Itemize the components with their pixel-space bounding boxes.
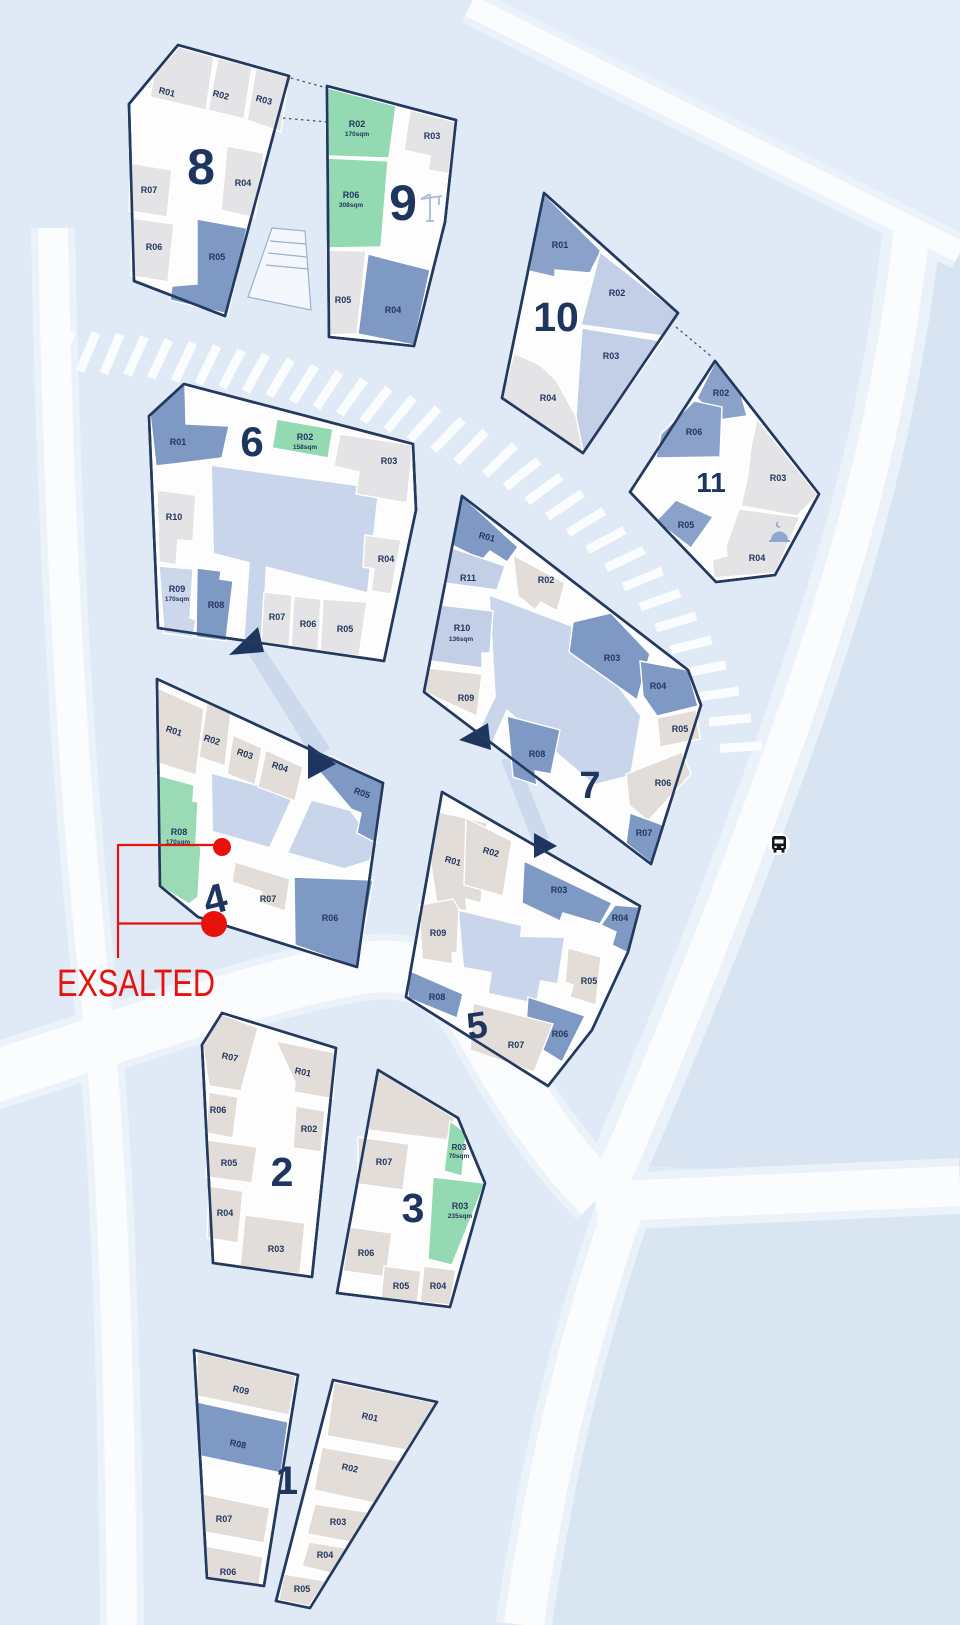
svg-text:R11: R11 (460, 573, 476, 583)
svg-text:R07: R07 (269, 612, 286, 622)
svg-text:R03: R03 (604, 653, 621, 663)
svg-text:R05: R05 (672, 724, 689, 734)
svg-text:R06: R06 (300, 619, 317, 629)
svg-text:R05: R05 (221, 1158, 238, 1168)
svg-text:R02: R02 (349, 119, 366, 129)
svg-text:11: 11 (696, 467, 726, 498)
svg-text:R04: R04 (217, 1208, 234, 1218)
svg-text:R03: R03 (452, 1201, 469, 1211)
svg-text:R07: R07 (376, 1157, 393, 1167)
svg-text:R04: R04 (612, 913, 629, 923)
svg-text:7: 7 (579, 765, 600, 807)
svg-text:R06: R06 (655, 778, 672, 788)
svg-text:R10: R10 (454, 623, 471, 633)
svg-text:136sqm: 136sqm (449, 636, 473, 643)
svg-text:R05: R05 (678, 520, 695, 530)
svg-text:R09: R09 (458, 693, 475, 703)
svg-text:235sqm: 235sqm (448, 1213, 472, 1220)
svg-text:R04: R04 (385, 305, 402, 315)
svg-text:R07: R07 (636, 828, 653, 838)
svg-text:R08: R08 (208, 600, 225, 610)
svg-text:R04: R04 (378, 554, 395, 564)
svg-text:EXSALTED: EXSALTED (57, 963, 215, 1005)
svg-text:R03: R03 (268, 1244, 285, 1254)
svg-text:2: 2 (271, 1149, 294, 1195)
svg-text:R07: R07 (508, 1040, 525, 1050)
svg-text:R09: R09 (169, 584, 186, 594)
svg-text:R05: R05 (335, 295, 352, 305)
svg-text:R06: R06 (343, 190, 360, 200)
svg-text:R02: R02 (609, 288, 626, 298)
svg-text:R01: R01 (170, 437, 187, 447)
svg-text:R02: R02 (713, 388, 730, 398)
svg-text:R01: R01 (552, 240, 569, 250)
svg-text:R05: R05 (294, 1584, 311, 1594)
svg-text:R06: R06 (322, 913, 339, 923)
svg-text:R06: R06 (358, 1248, 375, 1258)
svg-text:R05: R05 (581, 976, 598, 986)
svg-text:R03: R03 (424, 131, 441, 141)
svg-text:R04: R04 (540, 393, 557, 403)
svg-text:R04: R04 (650, 681, 667, 691)
svg-text:R08: R08 (429, 992, 446, 1002)
svg-text:R02: R02 (538, 575, 555, 585)
svg-text:8: 8 (187, 139, 215, 195)
svg-text:R03: R03 (452, 1143, 467, 1152)
svg-text:R06: R06 (552, 1029, 569, 1039)
svg-text:R09: R09 (430, 928, 447, 938)
svg-text:R03: R03 (603, 351, 620, 361)
svg-text:R05: R05 (337, 624, 354, 634)
svg-text:R03: R03 (330, 1517, 347, 1527)
svg-text:R04: R04 (430, 1281, 447, 1291)
svg-text:9: 9 (389, 175, 417, 231)
svg-text:R05: R05 (209, 252, 226, 262)
svg-text:R07: R07 (141, 185, 158, 195)
svg-text:6: 6 (240, 418, 263, 465)
svg-text:R06: R06 (146, 242, 163, 252)
svg-text:R02: R02 (297, 432, 314, 442)
svg-text:170sqm: 170sqm (345, 131, 369, 138)
svg-text:R06: R06 (686, 427, 703, 437)
svg-text:70sqm: 70sqm (449, 1153, 470, 1160)
svg-text:R06: R06 (210, 1105, 227, 1115)
svg-text:158sqm: 158sqm (293, 444, 317, 451)
svg-text:10: 10 (533, 294, 579, 340)
svg-text:R04: R04 (749, 553, 766, 563)
svg-text:R10: R10 (166, 512, 183, 522)
svg-text:R04: R04 (317, 1550, 334, 1560)
svg-text:R03: R03 (770, 473, 787, 483)
svg-text:R04: R04 (235, 178, 252, 188)
svg-text:R08: R08 (529, 749, 546, 759)
svg-text:170sqm: 170sqm (165, 596, 189, 603)
svg-text:R07: R07 (260, 894, 277, 904)
svg-text:R07: R07 (216, 1514, 233, 1524)
svg-text:308sqm: 308sqm (339, 202, 363, 209)
svg-text:R05: R05 (393, 1281, 410, 1291)
svg-text:3: 3 (402, 1185, 425, 1231)
svg-text:R08: R08 (171, 827, 188, 837)
svg-text:R06: R06 (220, 1567, 237, 1577)
svg-text:R02: R02 (301, 1124, 318, 1134)
svg-text:R03: R03 (381, 456, 398, 466)
svg-text:R03: R03 (551, 885, 568, 895)
